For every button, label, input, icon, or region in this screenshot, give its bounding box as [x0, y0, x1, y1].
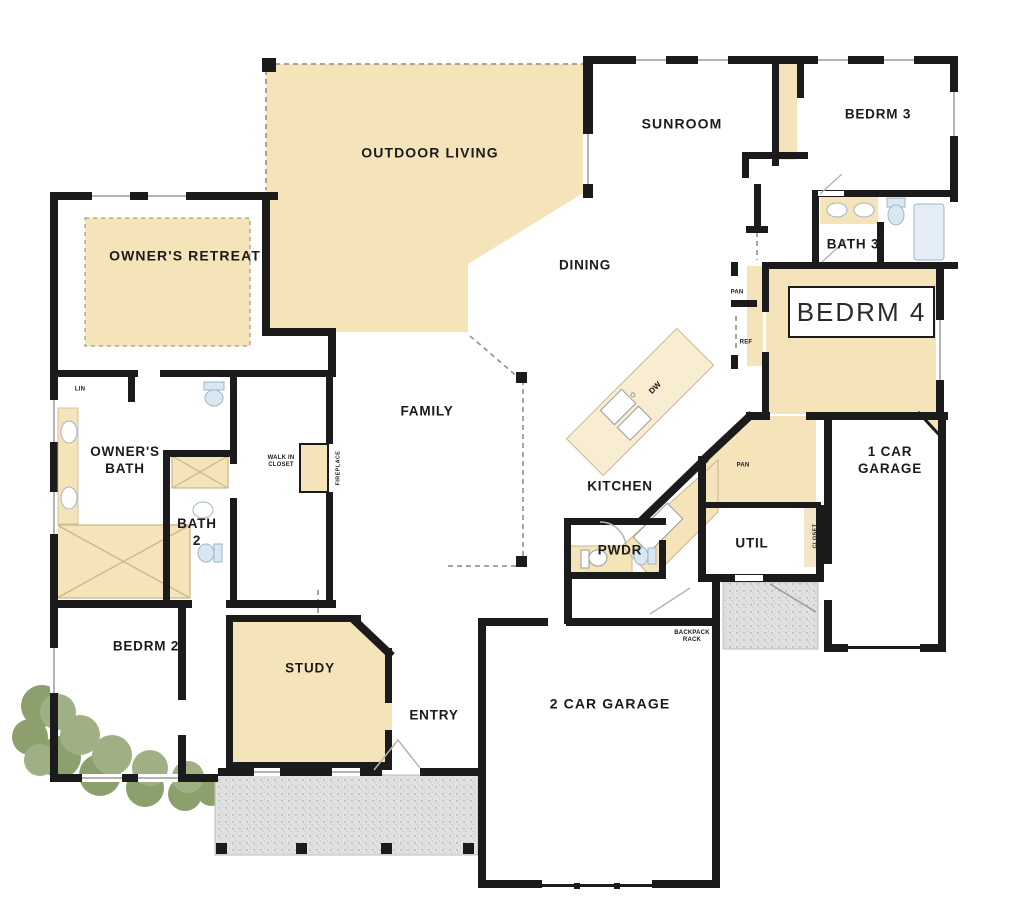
label-bath2-line2: 2	[193, 533, 201, 548]
label-1-car-garage: 1 CARGARAGE	[858, 444, 922, 478]
label-backpack-rack-line2: RACK	[683, 637, 701, 643]
label-backpack-rack: BACKPACKRACK	[674, 630, 710, 644]
label-owners-bath-line1: OWNER'S	[90, 444, 160, 459]
label-1-car-garage-line2: GARAGE	[858, 461, 922, 476]
label-walk-in-closet: WALK INCLOSET	[268, 455, 295, 469]
label-refrigerator: REF	[740, 340, 753, 347]
label-util: UTIL	[735, 536, 768, 553]
label-outdoor-living: OUTDOOR LIVING	[361, 144, 499, 162]
label-entry: ENTRY	[409, 708, 458, 725]
label-family: FAMILY	[400, 404, 453, 421]
floor-plan: DW	[0, 0, 1024, 918]
label-2-car-garage: 2 CAR GARAGE	[550, 695, 671, 713]
side-patio	[723, 582, 818, 649]
label-dining: DINING	[559, 258, 611, 275]
landscape-bushes	[12, 685, 225, 811]
label-pantry-upper: PAN	[731, 290, 744, 297]
owners-shower	[57, 525, 190, 598]
label-kitchen: KITCHEN	[587, 479, 653, 496]
bath2-tub	[172, 456, 228, 488]
label-owners-retreat: OWNER'S RETREAT	[109, 247, 261, 265]
owners-retreat-area	[85, 218, 250, 346]
label-pwdr: PWDR	[598, 543, 642, 560]
label-1-car-garage-line1: 1 CAR	[868, 444, 913, 459]
front-porch	[215, 775, 478, 855]
label-owners-bath: OWNER'SBATH	[90, 444, 160, 478]
label-backpack-rack-line1: BACKPACK	[674, 630, 710, 636]
label-mud-closet: CLOSET	[813, 524, 820, 549]
label-bath2: BATH2	[177, 516, 217, 550]
label-bath2-line1: BATH	[177, 516, 217, 531]
label-study: STUDY	[285, 661, 335, 678]
kitchen-island: DW	[566, 328, 713, 475]
label-owners-bath-line2: BATH	[105, 461, 145, 476]
label-walk-in-closet-line2: CLOSET	[268, 462, 294, 468]
label-sunroom: SUNROOM	[642, 115, 723, 133]
label-pantry-lower: PAN	[737, 463, 750, 470]
label-bedrm3: BEDRM 3	[845, 107, 911, 124]
fireplace-box	[300, 444, 328, 492]
label-bath3: BATH 3	[827, 237, 880, 254]
label-walk-in-closet-line1: WALK IN	[268, 455, 295, 461]
label-linen-closet: LIN	[75, 387, 85, 394]
label-bedrm4-annotation[interactable]: BEDRM 4	[788, 286, 935, 338]
label-bedrm2: BEDRM 2	[113, 639, 179, 656]
label-fireplace: FIREPLACE	[336, 451, 343, 486]
